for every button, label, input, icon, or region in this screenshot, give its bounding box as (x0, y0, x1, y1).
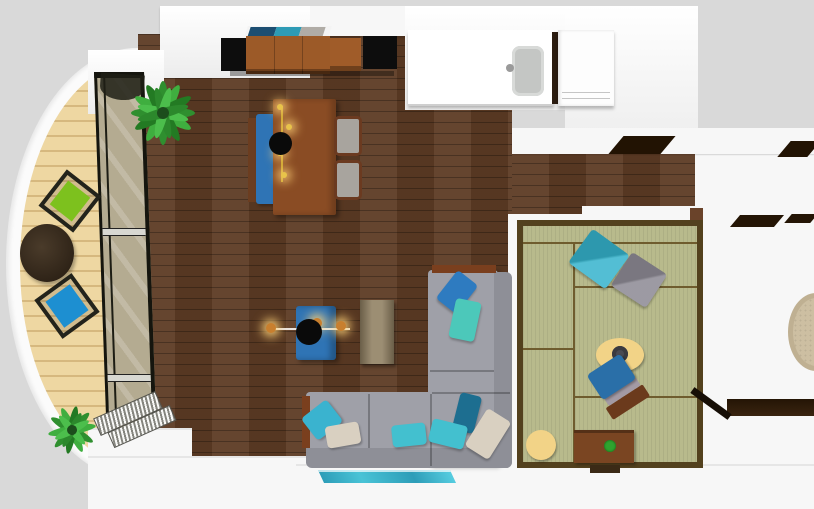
window-divider-1 (102, 228, 145, 236)
string-light-bulb (266, 323, 276, 333)
pendant-candle (277, 104, 283, 110)
dining-chair-1[interactable] (334, 116, 362, 156)
sofa-seam (430, 370, 494, 372)
right-room-bottom-shadow (727, 399, 814, 416)
chair-seat-green (50, 181, 91, 222)
pendant-candle (281, 172, 287, 178)
speaker-left[interactable] (221, 38, 246, 71)
dining-chair-2[interactable] (334, 160, 362, 200)
kitchen-sink[interactable] (512, 46, 544, 96)
speaker-right[interactable] (363, 36, 397, 69)
chair-seat-blue (45, 284, 88, 328)
palm-icon (118, 68, 208, 158)
balcony-table[interactable] (20, 224, 74, 282)
sideboard-shadow (230, 71, 394, 76)
pendant-lamp-shade[interactable] (269, 132, 292, 155)
round-cushion-yellow[interactable] (526, 430, 556, 460)
sideboard-cabinet[interactable] (246, 36, 330, 74)
sofa-wood-trim-top (432, 265, 496, 273)
wood-bench[interactable] (360, 300, 394, 364)
sofa-seam (368, 394, 370, 448)
appliance-line (562, 92, 610, 93)
appliance-line (562, 98, 610, 99)
sideboard-cabinet-right[interactable] (330, 38, 361, 71)
string-light-bulb (336, 321, 346, 331)
cabinet-seam (274, 36, 275, 74)
tatami-line-h-l1 (523, 348, 575, 350)
pillow-teal[interactable] (391, 422, 427, 447)
faucet[interactable] (506, 64, 514, 72)
floor-plan-canvas (0, 0, 814, 509)
ceiling-lamp-shade[interactable] (296, 319, 322, 345)
pendant-candle (286, 124, 292, 130)
tv-board-shadow-item (590, 465, 620, 473)
potted-plant-small[interactable] (604, 440, 616, 452)
window-divider-2 (108, 374, 151, 382)
tatami-line-v (573, 242, 575, 462)
palm-plant-large[interactable] (118, 68, 208, 158)
runner-rug[interactable] (318, 470, 456, 483)
kitchen-appliance[interactable] (558, 30, 614, 106)
cabinet-seam (302, 36, 303, 74)
